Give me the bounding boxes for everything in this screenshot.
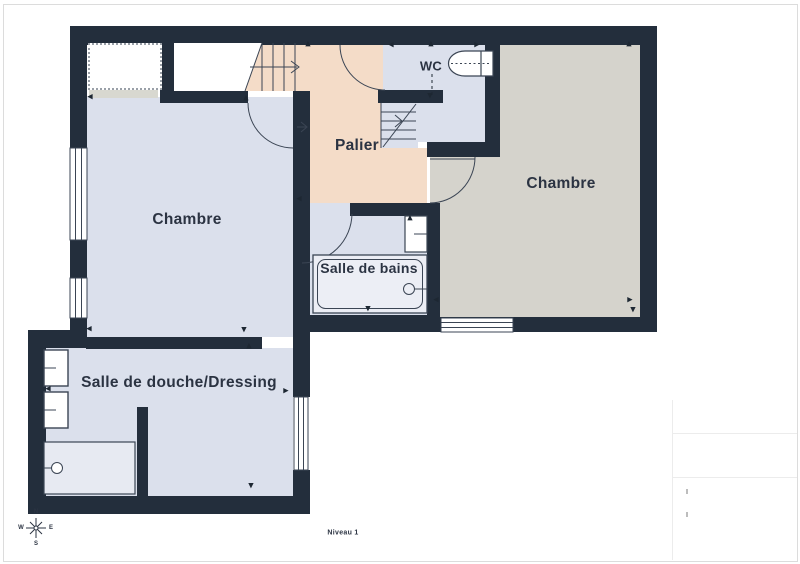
compass-west-label: W xyxy=(18,525,24,531)
wall-segment xyxy=(293,103,310,348)
compass-south-label: S xyxy=(34,541,38,547)
wall-segment xyxy=(28,496,310,514)
room-label-chambre-right: Chambre xyxy=(526,175,595,193)
wall-segment xyxy=(28,330,46,514)
legend-mark xyxy=(686,512,688,517)
legend-grid-hline xyxy=(672,477,797,478)
dimension-tick: ▼ xyxy=(248,483,253,490)
dimension-tick: ◀ xyxy=(45,386,50,393)
wall-segment xyxy=(293,91,310,103)
wall-segment xyxy=(293,470,310,514)
legend-grid-vline xyxy=(672,400,673,560)
wall-segment xyxy=(427,142,500,157)
dimension-tick: ▼ xyxy=(427,93,432,100)
wall-segment xyxy=(86,337,262,349)
level-label: Niveau 1 xyxy=(327,530,358,537)
room-salle-de-douche-floor xyxy=(46,348,293,496)
dimension-tick: ▼ xyxy=(241,327,246,334)
compass-north-label: N xyxy=(34,509,38,515)
dimension-tick: ▼ xyxy=(630,307,635,314)
compass-east-label: E xyxy=(49,525,53,531)
dimension-tick: ▲ xyxy=(407,215,412,222)
legend-mark xyxy=(686,489,688,494)
dimension-tick: ◀ xyxy=(296,196,301,203)
dimension-tick: ▲ xyxy=(243,95,248,102)
room-label-salle-de-douche: Salle de douche/Dressing xyxy=(81,374,277,392)
wall-segment xyxy=(137,407,148,496)
dimension-tick: ◀ xyxy=(388,42,393,49)
wall-segment xyxy=(160,91,248,103)
wall-segment xyxy=(70,26,87,148)
closet xyxy=(88,43,162,90)
room-label-palier: Palier xyxy=(335,137,379,155)
wall-segment xyxy=(427,203,440,332)
dimension-tick: ▶ xyxy=(627,297,632,304)
dimension-tick: ◀ xyxy=(86,326,91,333)
room-label-wc: WC xyxy=(420,59,442,74)
dimension-tick: ▲ xyxy=(626,41,631,48)
dimension-tick: ▶ xyxy=(474,42,479,49)
stair-lower-floor xyxy=(381,103,418,148)
room-label-salle-de-bains: Salle de bains xyxy=(320,260,418,276)
dimension-tick: ▶ xyxy=(283,388,288,395)
wall-segment xyxy=(293,348,310,397)
dimension-tick: ◀ xyxy=(87,94,92,101)
legend-grid-hline xyxy=(672,433,797,434)
dimension-tick: ▼ xyxy=(365,306,370,313)
floor-plan: Chambre Chambre Palier WC Salle de bains… xyxy=(0,0,800,564)
dimension-tick: ▲ xyxy=(428,41,433,48)
wall-segment xyxy=(293,315,440,332)
wall-segment xyxy=(640,26,657,332)
room-palier-floor-mid xyxy=(310,91,381,103)
wall-segment xyxy=(420,317,657,332)
wall-segment xyxy=(485,26,500,157)
dimension-tick: ▲ xyxy=(246,343,251,350)
wall-segment xyxy=(70,240,87,278)
wall-segment xyxy=(378,90,443,103)
room-label-chambre-left: Chambre xyxy=(152,211,221,229)
dimension-tick: ▲ xyxy=(305,41,310,48)
dimension-tick: ◀ xyxy=(433,297,438,304)
room-chambre-right-floor-lower xyxy=(430,157,500,317)
room-palier-floor-right xyxy=(381,148,427,203)
closet-sill xyxy=(89,90,158,98)
room-palier-floor-top xyxy=(245,43,383,91)
